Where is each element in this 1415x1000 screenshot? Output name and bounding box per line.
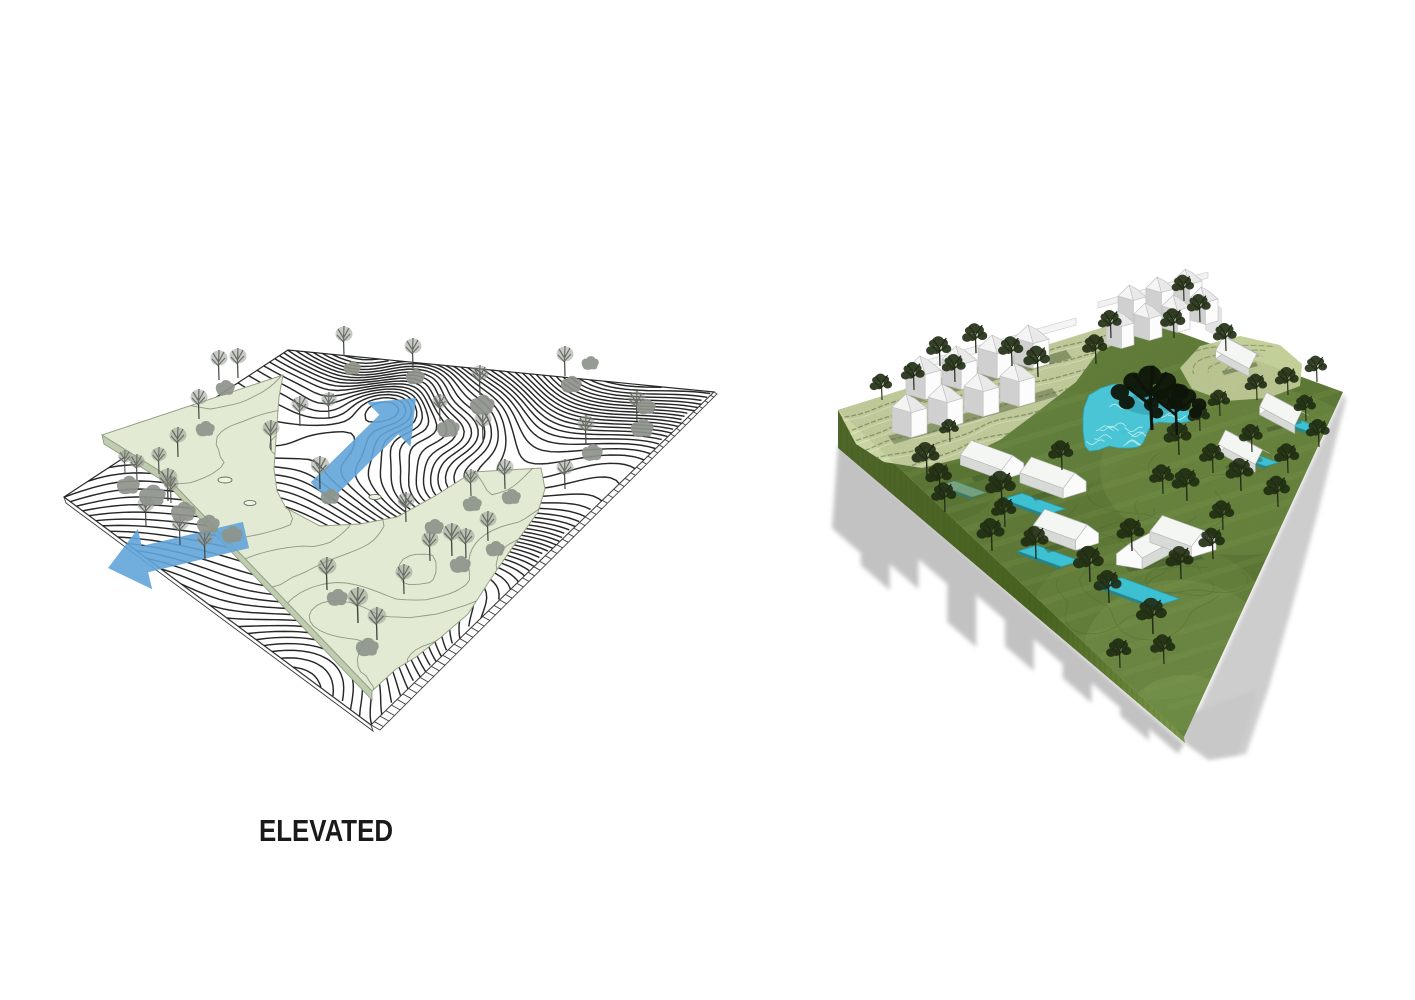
svg-text:ELEVATED: ELEVATED (259, 813, 393, 848)
